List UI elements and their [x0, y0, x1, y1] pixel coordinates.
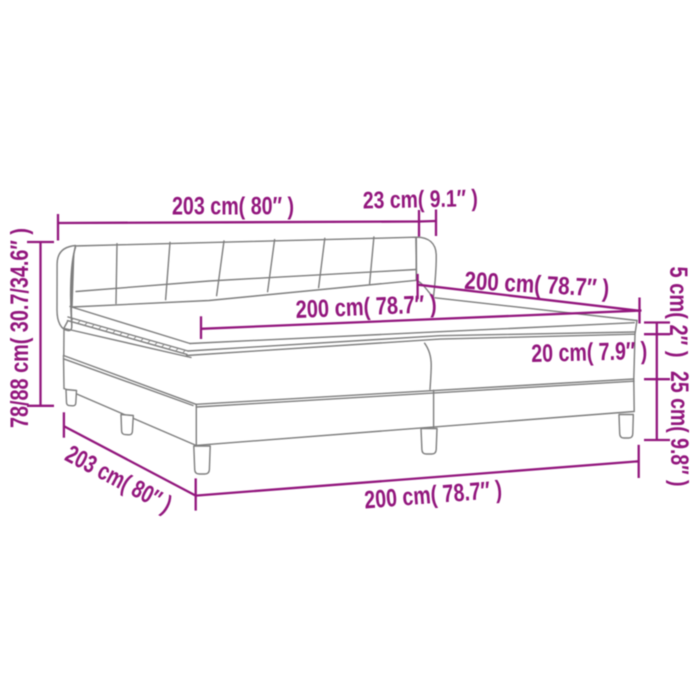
- svg-text:5 cm( 2″ ): 5 cm( 2″ ): [664, 267, 692, 358]
- svg-text:25 cm( 9.8″ ): 25 cm( 9.8″ ): [665, 371, 693, 487]
- svg-text:78/88 cm( 30.7/34.6″ ): 78/88 cm( 30.7/34.6″ ): [6, 228, 34, 428]
- svg-text:20 cm( 7.9″ ): 20 cm( 7.9″ ): [531, 337, 648, 368]
- svg-text:23 cm( 9.1″ ): 23 cm( 9.1″ ): [363, 185, 479, 214]
- svg-text:200 cm( 78.7″ ): 200 cm( 78.7″ ): [295, 290, 437, 324]
- svg-text:203 cm( 80″ ): 203 cm( 80″ ): [172, 193, 294, 221]
